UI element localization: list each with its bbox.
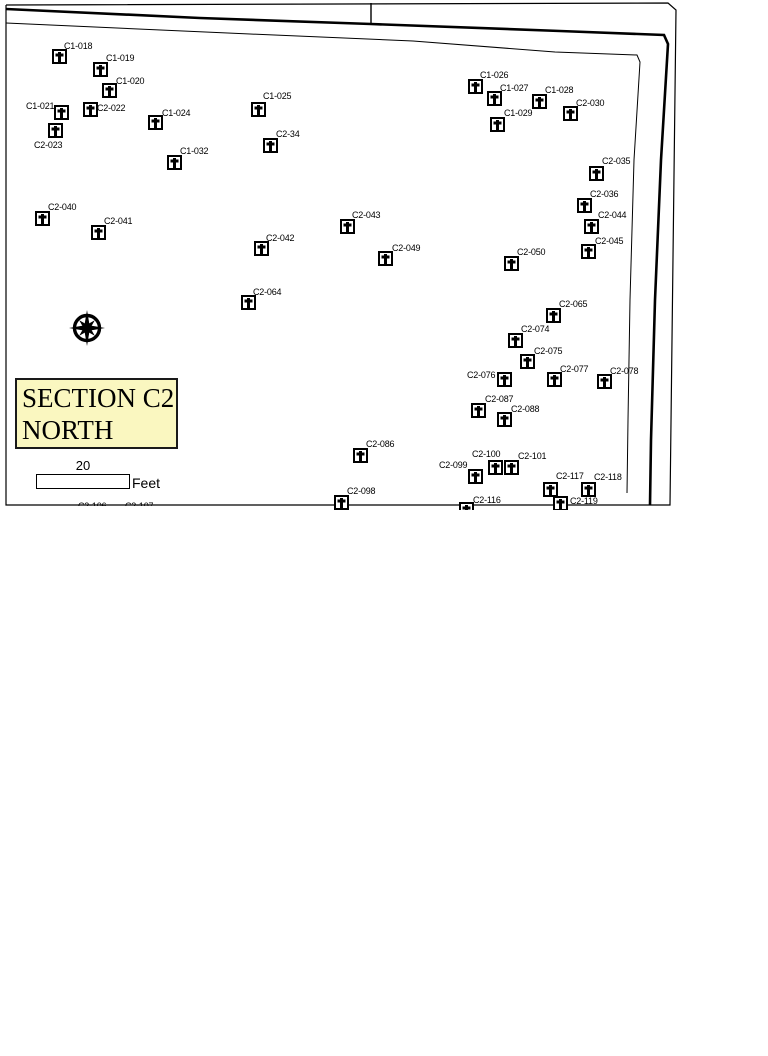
grave-label: C2-106: [78, 501, 106, 506]
grave-label: C1-025: [263, 91, 291, 101]
grave-label: C2-043: [352, 210, 380, 220]
grave-marker: [35, 211, 50, 226]
grave-marker: [148, 115, 163, 130]
cross-icon: [468, 469, 483, 484]
grave-marker: [497, 412, 512, 427]
grave-label: C2-023: [34, 140, 62, 150]
grave-label: C2-088: [511, 404, 539, 414]
grave-marker: [504, 460, 519, 475]
grave-label: C2-035: [602, 156, 630, 166]
grave-marker: [543, 482, 558, 497]
grave-marker: [584, 219, 599, 234]
grave-marker: [488, 460, 503, 475]
scale-bar-value: 20: [36, 458, 130, 473]
grave-marker: [581, 482, 596, 497]
cross-icon: [553, 496, 568, 511]
cross-icon: [35, 211, 50, 226]
cross-icon: [83, 102, 98, 117]
grave-marker: [353, 448, 368, 463]
grave-label: C2-119: [570, 496, 598, 506]
cross-icon: [93, 62, 108, 77]
cross-icon: [167, 155, 182, 170]
grave-label: C2-087: [485, 394, 513, 404]
grave-marker: [378, 251, 393, 266]
cross-icon: [340, 219, 355, 234]
grave-label: C1-029: [504, 108, 532, 118]
grave-label: C2-107: [125, 501, 153, 506]
grave-marker: [468, 79, 483, 94]
section-title-line1: SECTION C2: [22, 382, 176, 414]
grave-label: C2-040: [48, 202, 76, 212]
grave-marker: [102, 83, 117, 98]
section-title-box: SECTION C2 NORTH: [15, 378, 178, 449]
cross-icon: [251, 102, 266, 117]
grave-label: C2-078: [610, 366, 638, 376]
grave-label: C2-044: [598, 210, 626, 220]
grave-label: C1-032: [180, 146, 208, 156]
scale-bar-unit: Feet: [132, 475, 160, 491]
grave-label: C1-021: [26, 101, 54, 111]
grave-label: C2-076: [467, 370, 495, 380]
grave-marker: [581, 244, 596, 259]
grave-label: C1-019: [106, 53, 134, 63]
grave-label: C2-050: [517, 247, 545, 257]
grave-label: C2-045: [595, 236, 623, 246]
grave-label: C2-022: [97, 103, 125, 113]
cross-icon: [546, 308, 561, 323]
grave-marker: [553, 496, 568, 511]
cross-icon: [490, 117, 505, 132]
cross-icon: [504, 460, 519, 475]
grave-marker: [93, 62, 108, 77]
grave-marker: [54, 105, 69, 120]
grave-marker: [520, 354, 535, 369]
section-title-line2: NORTH: [22, 414, 176, 446]
scale-bar: [36, 474, 130, 489]
cross-icon: [584, 219, 599, 234]
cross-icon: [497, 412, 512, 427]
grave-label: C2-099: [439, 460, 467, 470]
cross-icon: [497, 372, 512, 387]
grave-marker: [508, 333, 523, 348]
grave-marker: [468, 469, 483, 484]
grave-marker: [48, 123, 63, 138]
grave-label: C2-036: [590, 189, 618, 199]
grave-marker: [504, 256, 519, 271]
grave-marker: [83, 102, 98, 117]
cross-icon: [334, 495, 349, 510]
cross-icon: [54, 105, 69, 120]
grave-label: C2-049: [392, 243, 420, 253]
grave-marker: [167, 155, 182, 170]
map-page: SECTION C2 NORTH 20 Feet C1-018C1-019C1-…: [0, 0, 768, 1056]
grave-label: C1-024: [162, 108, 190, 118]
cross-icon: [520, 354, 535, 369]
grave-label: C2-34: [276, 129, 300, 139]
grave-label: C2-100: [472, 449, 500, 459]
cross-icon: [459, 502, 474, 511]
grave-marker: [263, 138, 278, 153]
grave-marker: [91, 225, 106, 240]
cross-icon: [577, 198, 592, 213]
grave-marker: [471, 403, 486, 418]
cross-icon: [353, 448, 368, 463]
cross-icon: [581, 244, 596, 259]
grave-marker: [589, 166, 604, 181]
grave-label: C1-027: [500, 83, 528, 93]
cross-icon: [508, 333, 523, 348]
grave-marker: [546, 308, 561, 323]
grave-marker: [251, 102, 266, 117]
cross-icon: [378, 251, 393, 266]
cross-icon: [589, 166, 604, 181]
grave-label: C2-042: [266, 233, 294, 243]
grave-label: C2-030: [576, 98, 604, 108]
cross-icon: [488, 460, 503, 475]
grave-marker: [340, 219, 355, 234]
cross-icon: [102, 83, 117, 98]
grave-label: C2-098: [347, 486, 375, 496]
grave-marker: [334, 495, 349, 510]
cross-icon: [504, 256, 519, 271]
cross-icon: [581, 482, 596, 497]
grave-marker: [490, 117, 505, 132]
clipped-grave-label: C2-107: [125, 501, 153, 506]
cemetery-map: SECTION C2 NORTH 20 Feet C1-018C1-019C1-…: [0, 0, 768, 510]
grave-label: C2-077: [560, 364, 588, 374]
cross-icon: [91, 225, 106, 240]
cross-icon: [543, 482, 558, 497]
cross-icon: [148, 115, 163, 130]
grave-label: C2-117: [556, 471, 584, 481]
grave-label: C1-028: [545, 85, 573, 95]
grave-label: C2-041: [104, 216, 132, 226]
grave-label: C2-074: [521, 324, 549, 334]
grave-label: C1-020: [116, 76, 144, 86]
cross-icon: [263, 138, 278, 153]
grave-label: C1-026: [480, 70, 508, 80]
grave-marker: [577, 198, 592, 213]
grave-marker: [532, 94, 547, 109]
grave-label: C2-118: [594, 472, 622, 482]
grave-label: C2-065: [559, 299, 587, 309]
cross-icon: [532, 94, 547, 109]
cross-icon: [468, 79, 483, 94]
grave-label: C2-101: [518, 451, 546, 461]
grave-label: C2-116: [473, 495, 501, 505]
grave-label: C1-018: [64, 41, 92, 51]
clipped-grave-label: C2-106: [78, 501, 106, 506]
grave-marker: [497, 372, 512, 387]
cross-icon: [471, 403, 486, 418]
grave-label: C2-064: [253, 287, 281, 297]
grave-label: C2-075: [534, 346, 562, 356]
cross-icon: [48, 123, 63, 138]
grave-marker: [459, 502, 474, 511]
compass-rose-icon: [65, 306, 109, 350]
grave-label: C2-086: [366, 439, 394, 449]
